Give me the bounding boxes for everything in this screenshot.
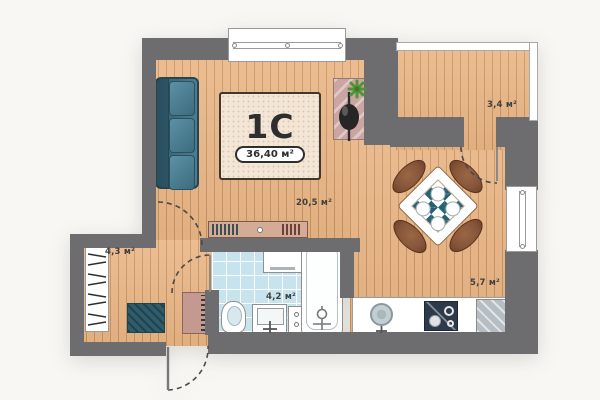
knob — [294, 312, 299, 317]
vanity-sink — [252, 304, 287, 333]
wall — [70, 342, 166, 356]
toilet — [221, 301, 246, 333]
stove — [424, 301, 458, 331]
shelf-knob — [257, 227, 263, 233]
window — [228, 28, 346, 62]
area-label-hallway: 4,3 м² — [105, 247, 135, 257]
stove-burner — [447, 320, 454, 327]
basin — [257, 308, 284, 325]
unit-info-rug: 1C 36,40 м² — [219, 92, 321, 180]
unit-total-area-badge: 36,40 м² — [235, 146, 305, 163]
wall — [208, 332, 510, 354]
sofa-cushion — [169, 118, 195, 153]
area-label-bathroom: 4,2 м² — [266, 292, 296, 302]
wall — [496, 117, 538, 147]
books — [282, 224, 302, 235]
console-table — [333, 78, 365, 140]
doormat — [127, 303, 165, 333]
balcony-glazing — [529, 42, 538, 121]
worktop-glass-section — [476, 299, 507, 333]
wall — [205, 290, 219, 335]
bathtub-basin — [306, 246, 338, 330]
sofa-cushion — [169, 81, 195, 116]
area-label-living: 20,5 м² — [296, 198, 332, 208]
knob — [294, 322, 299, 327]
sofa — [155, 77, 199, 189]
sofa-cushion — [169, 155, 195, 190]
wall — [390, 117, 464, 147]
floor-plan: 1C 36,40 м² — [0, 0, 600, 400]
unit-code: 1C — [245, 110, 294, 143]
wall — [505, 147, 538, 190]
sofa-backrest — [157, 79, 169, 187]
toilet-bowl — [227, 306, 242, 326]
wardrobe-hangers — [85, 246, 109, 332]
washer-door — [270, 267, 295, 270]
window — [506, 186, 537, 252]
kitchen-sink — [370, 303, 393, 326]
area-label-kitchen: 5,7 м² — [470, 278, 500, 288]
books — [212, 224, 238, 235]
balcony-glazing — [396, 42, 538, 51]
bathtub — [301, 241, 343, 335]
door-swing-arc-entrance — [168, 346, 208, 390]
wall — [70, 234, 84, 356]
stove-burner — [444, 306, 454, 316]
wall — [142, 38, 156, 248]
bookshelf — [208, 221, 308, 238]
stove-burner — [429, 315, 441, 327]
wall — [340, 238, 354, 298]
wall — [200, 238, 360, 252]
area-label-balcony: 3,4 м² — [487, 100, 517, 110]
